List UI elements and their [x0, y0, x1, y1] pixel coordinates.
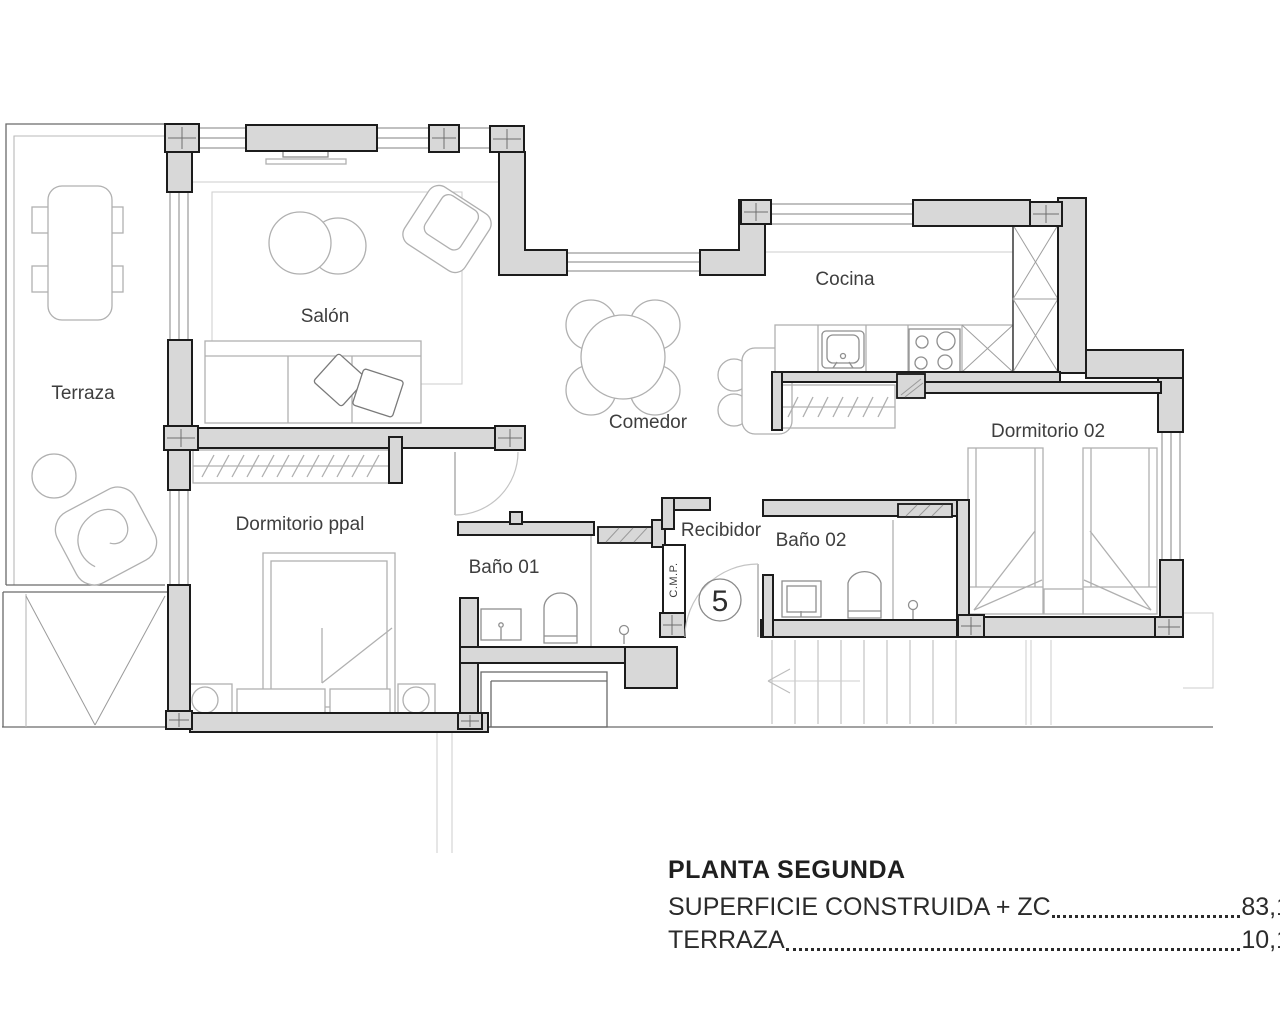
master-bedroom-door	[455, 452, 518, 515]
kitchen-sink	[822, 331, 864, 368]
master-bed	[178, 553, 435, 716]
room-label-salon: Salón	[301, 306, 350, 327]
salon-round-tables	[269, 212, 366, 274]
dotted-leader	[786, 924, 1241, 951]
column-marker	[429, 125, 459, 152]
cooktop	[909, 329, 960, 373]
floor-plan-page: Terraza Salón Cocina Comedor Dormitorio …	[0, 0, 1280, 1024]
column-marker	[490, 126, 524, 152]
legend-value: 10,1	[1241, 924, 1280, 957]
corridor-closet	[782, 385, 895, 428]
legend-row-terraza: TERRAZA 10,1	[668, 924, 1280, 957]
room-label-cocina: Cocina	[815, 269, 875, 290]
column-marker	[741, 200, 771, 224]
salon-sofa	[205, 341, 421, 423]
bathroom-01-fixtures	[481, 535, 629, 646]
legend-row-superficie: SUPERFICIE CONSTRUIDA + ZC 83,1	[668, 891, 1280, 924]
dining-table-set	[566, 300, 680, 415]
unit-number-badge: 5	[699, 579, 741, 621]
room-label-bano-01: Baño 01	[469, 557, 540, 578]
column-marker	[164, 426, 198, 450]
room-label-recibidor: Recibidor	[681, 520, 762, 541]
nightstand	[1044, 589, 1083, 614]
legend: PLANTA SEGUNDA SUPERFICIE CONSTRUIDA + Z…	[668, 856, 1280, 957]
terrace-lounge-chair	[48, 480, 163, 592]
room-label-dormitorio-02: Dormitorio 02	[991, 421, 1105, 442]
column-marker	[660, 613, 685, 637]
legend-title: PLANTA SEGUNDA	[668, 856, 1280, 885]
room-label-dormitorio-ppal: Dormitorio ppal	[236, 514, 365, 535]
legend-label: TERRAZA	[668, 924, 785, 957]
legend-value: 83,1	[1241, 891, 1280, 924]
terrace-side-table	[32, 454, 76, 498]
column-marker	[458, 713, 482, 729]
column-marker	[1030, 202, 1062, 226]
kitchen-tall-cabinet	[1013, 225, 1058, 372]
twin-bed-2	[1083, 448, 1157, 614]
column-marker	[958, 615, 984, 637]
terrace-table-set	[32, 186, 123, 320]
tv-unit	[266, 151, 346, 164]
legend-label: SUPERFICIE CONSTRUIDA + ZC	[668, 891, 1051, 924]
cmp-shaft-label: C.M.P.	[668, 562, 680, 597]
salon-armchair	[398, 181, 495, 277]
twin-bed-1	[968, 448, 1043, 614]
column-marker	[166, 711, 192, 729]
unit-number: 5	[712, 585, 729, 618]
column-marker	[495, 426, 525, 450]
dotted-leader	[1052, 891, 1241, 918]
shaft-box	[481, 672, 607, 727]
staircase	[772, 640, 956, 724]
master-wardrobe	[193, 450, 389, 483]
room-label-terraza: Terraza	[51, 383, 115, 404]
kitchen-counter	[775, 325, 1013, 373]
column-marker	[165, 124, 199, 152]
room-label-comedor: Comedor	[609, 412, 688, 433]
stair-direction-arrow	[768, 669, 860, 693]
room-label-bano-02: Baño 02	[776, 530, 847, 551]
column-marker	[1155, 617, 1183, 637]
